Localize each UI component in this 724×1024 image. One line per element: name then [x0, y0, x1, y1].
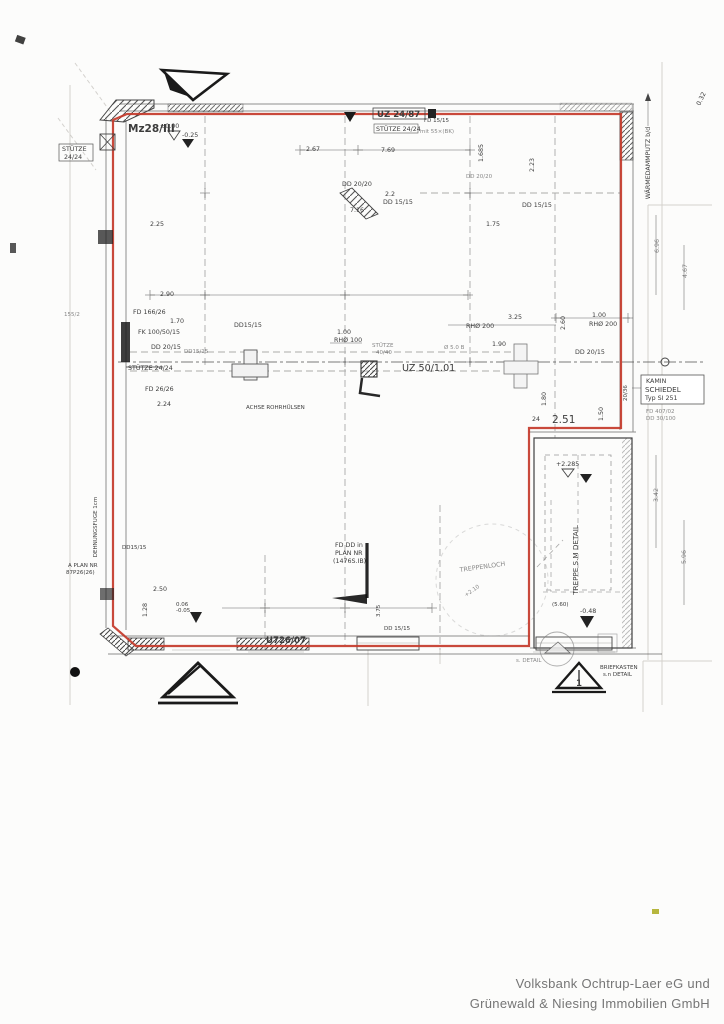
label-dim-190: 1.90 [492, 341, 506, 348]
wall-blotch-2 [100, 588, 114, 600]
level-triangle-filled-stair-bottom [580, 616, 594, 628]
stair-detail-lines [537, 455, 623, 592]
label-dim-267: 2.67 [306, 146, 320, 153]
label-dim-22: 2.2 [385, 191, 395, 198]
label-s-detail: s. DETAIL [516, 658, 542, 664]
label-rh-100: RHØ 100 [334, 336, 362, 344]
triangle-marker-top [162, 70, 227, 100]
cross-column-left [232, 350, 268, 380]
label-lvl-plus2285: +2.285 [556, 461, 579, 468]
label-dim-170: 1.70 [170, 318, 184, 325]
stair-wall-hatch [622, 438, 632, 648]
arrowhead-waermedaemm [645, 93, 651, 101]
label-dehnungsfuge: DEHNUNGSFUGE 1cm [93, 497, 99, 557]
label-dim-716: 7.16 [350, 207, 364, 214]
label-stuetze-left-2: 24/24 [64, 154, 82, 161]
scan-dot-bottom-left [70, 667, 80, 677]
plan-labels: Mz28/III ±0.00 -0.25 UZ 24/87 STÜTZE 24/… [62, 91, 708, 689]
t-column-right [504, 344, 538, 388]
label-dd-2020-b: DD 20/20 [466, 174, 493, 180]
level-triangle-filled-stair-top [580, 474, 592, 483]
label-lvl-minus005: -0.05 [176, 608, 191, 614]
label-dim-2036: 20/36 [623, 385, 629, 401]
label-uz-50: UZ 50/1.01 [402, 363, 455, 374]
label-dim-224: 2.24 [157, 401, 171, 408]
label-dd-2015-b: DD 20/15 [575, 349, 605, 356]
label-dd-1515-b: DD 15/15 [522, 202, 552, 209]
label-uz-24-87: UZ 24/87 [377, 110, 420, 120]
label-section-1: 1 [576, 679, 582, 689]
label-fd-26-26: FD 26/26 [145, 386, 174, 393]
label-dim-560: (5.60) [552, 602, 569, 608]
treppenloch-arc [436, 524, 548, 636]
level-triangle-open-stair [562, 469, 574, 477]
label-stuetze-4040-1: STÜTZE [372, 342, 394, 349]
label-rh-200-a: RHØ 200 [466, 322, 494, 330]
wall-blotch-1 [98, 230, 113, 244]
footer-line-1: Volksbank Ochtrup-Laer eG und [470, 974, 710, 994]
label-fk-100-50-15: FK 100/50/15 [138, 329, 180, 336]
label-dim-1685: 1.685 [478, 144, 485, 162]
label-dim-596: 5.96 [681, 550, 688, 564]
label-lvl-plus210: +2.10 [464, 584, 482, 599]
label-stuetze-4040-2: 40/40 [376, 350, 392, 356]
label-kamin-1: KAMIN [646, 378, 667, 385]
label-stuetze-left-1: STÜTZE [62, 144, 87, 153]
label-dd-2020-a: DD 20/20 [342, 181, 372, 188]
label-dim-342: 3.42 [653, 488, 660, 502]
label-dim-24: 24 [532, 416, 540, 423]
label-dd-1515-e: DD15/15 [122, 545, 147, 551]
label-dim-769: 7.69 [381, 147, 395, 154]
label-dim-100-l: 1.00 [337, 329, 351, 336]
label-dd-1515-a: DD 15/15 [383, 199, 413, 206]
label-briefkasten-2: s.n DETAIL [603, 672, 633, 678]
label-a-plan-1: A PLAN NR [68, 563, 98, 569]
heavy-bracket-left [121, 322, 130, 362]
label-kamin-3: Typ SI 251 [644, 395, 677, 402]
label-dim-223: 2.23 [529, 158, 536, 172]
label-stuetze-mid: STÜTZE 24/24 [128, 363, 173, 372]
label-stuetze-top: STÜTZE 24/24 [376, 124, 421, 133]
label-uz-26-07: U726/07 [266, 636, 306, 646]
label-phi-50: Ø 5.0 B [444, 344, 465, 351]
scan-speck-1 [15, 35, 26, 45]
label-lvl-minus048: -0.48 [580, 608, 596, 615]
uz-box-square [428, 109, 436, 118]
floorplan-drawing: Mz28/III ±0.00 -0.25 UZ 24/87 STÜTZE 24/… [0, 0, 724, 1024]
label-treppenloch: TREPPENLOCH [458, 561, 506, 574]
label-dim-175: 1.75 [486, 221, 500, 228]
label-a-plan-2: 87P26(26) [66, 570, 95, 576]
label-dim-150: 1.50 [598, 407, 605, 421]
label-fd-15-15-top: FD 15/15 [424, 118, 449, 124]
label-fd-166-26: FD 166/26 [133, 309, 166, 316]
plus-tick-marks [145, 145, 633, 613]
label-dim-251: 2.51 [552, 414, 575, 426]
label-lvl-minus025: -0.25 [182, 132, 198, 139]
level-triangle-filled-top [182, 139, 194, 148]
label-dd-1515-d: DD15/15 [184, 349, 209, 355]
footer-line-2: Grünewald & Niesing Immobilien GmbH [470, 994, 710, 1014]
label-dim-260: 2.60 [560, 316, 567, 330]
label-dim-100-r: 1.00 [592, 312, 606, 319]
label-lvl-plus000: ±0.00 [160, 123, 179, 130]
center-column-hatched [360, 361, 380, 396]
label-kamin-2: SCHIEDEL [645, 385, 681, 394]
label-dd-1515-f: DD 15/15 [384, 626, 411, 632]
level-triangle-filled-wall [344, 112, 356, 122]
label-briefkasten-1: BRIEFKASTEN [600, 665, 638, 671]
level-triangle-filled-bottom-wall [190, 612, 202, 623]
scanned-plan-page: Mz28/III ±0.00 -0.25 UZ 24/87 STÜTZE 24/… [0, 0, 724, 1024]
label-dim-225: 2.25 [150, 221, 164, 228]
label-dim-290: 2.90 [160, 291, 174, 298]
triangle-marker-bottom-left [158, 663, 238, 703]
label-dim-375: 3.75 [376, 604, 382, 617]
footing-plain-1 [357, 637, 419, 650]
axis-dashed-lines [130, 116, 620, 650]
label-treppe-detail: TREPPE S.M DETAIL [571, 525, 580, 596]
scan-speck-2 [10, 243, 16, 253]
yellow-speck [652, 909, 659, 914]
label-rh-200-b: RHØ 200 [589, 320, 617, 328]
label-dim-696: 6.96 [654, 239, 661, 253]
label-dim-180: 1.80 [541, 392, 548, 406]
label-dim-250: 2.50 [153, 586, 167, 593]
label-achse-rohrhuelsen: ACHSE ROHRHÜLSEN [246, 404, 305, 411]
label-fd-plan-2: PLAN NR [335, 550, 363, 557]
label-waermedaemmputz: WÄRMEDAMMPUTZ b/d [643, 127, 652, 200]
label-dd-2015-a: DD 20/15 [151, 344, 181, 351]
label-fd-plan-1: FD DD in [335, 542, 363, 549]
label-stuetze-top-note: mit 55×(BK) [420, 129, 454, 135]
label-kamin-4: FD 407/02 [646, 409, 675, 415]
label-dim-467: 4.67 [682, 264, 689, 278]
diagonal-beam-hatched [340, 188, 378, 219]
label-dd-1515-c: DD15/15 [234, 322, 262, 329]
label-dim-325: 3.25 [508, 314, 522, 321]
label-kamin-5: DD 30/100 [646, 416, 676, 422]
label-dim-032: 0.32 [695, 91, 707, 107]
label-dim-155-2: 155/2 [64, 312, 80, 318]
footer: Volksbank Ochtrup-Laer eG und Grünewald … [470, 974, 710, 1014]
label-fd-plan-3: (1476S.IB) [333, 558, 366, 565]
label-dim-128: 1.28 [142, 603, 149, 617]
